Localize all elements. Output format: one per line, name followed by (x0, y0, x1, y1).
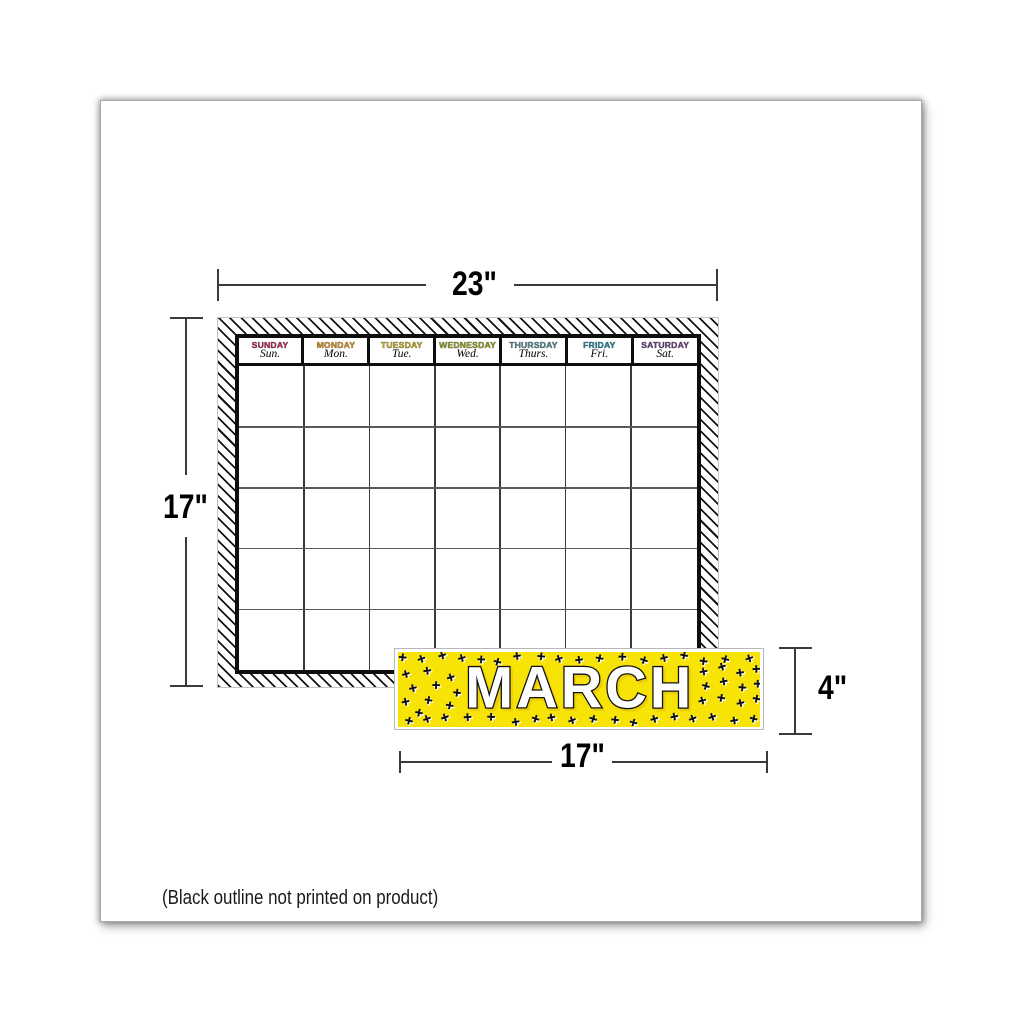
svg-text:MARCH: MARCH (465, 656, 694, 720)
